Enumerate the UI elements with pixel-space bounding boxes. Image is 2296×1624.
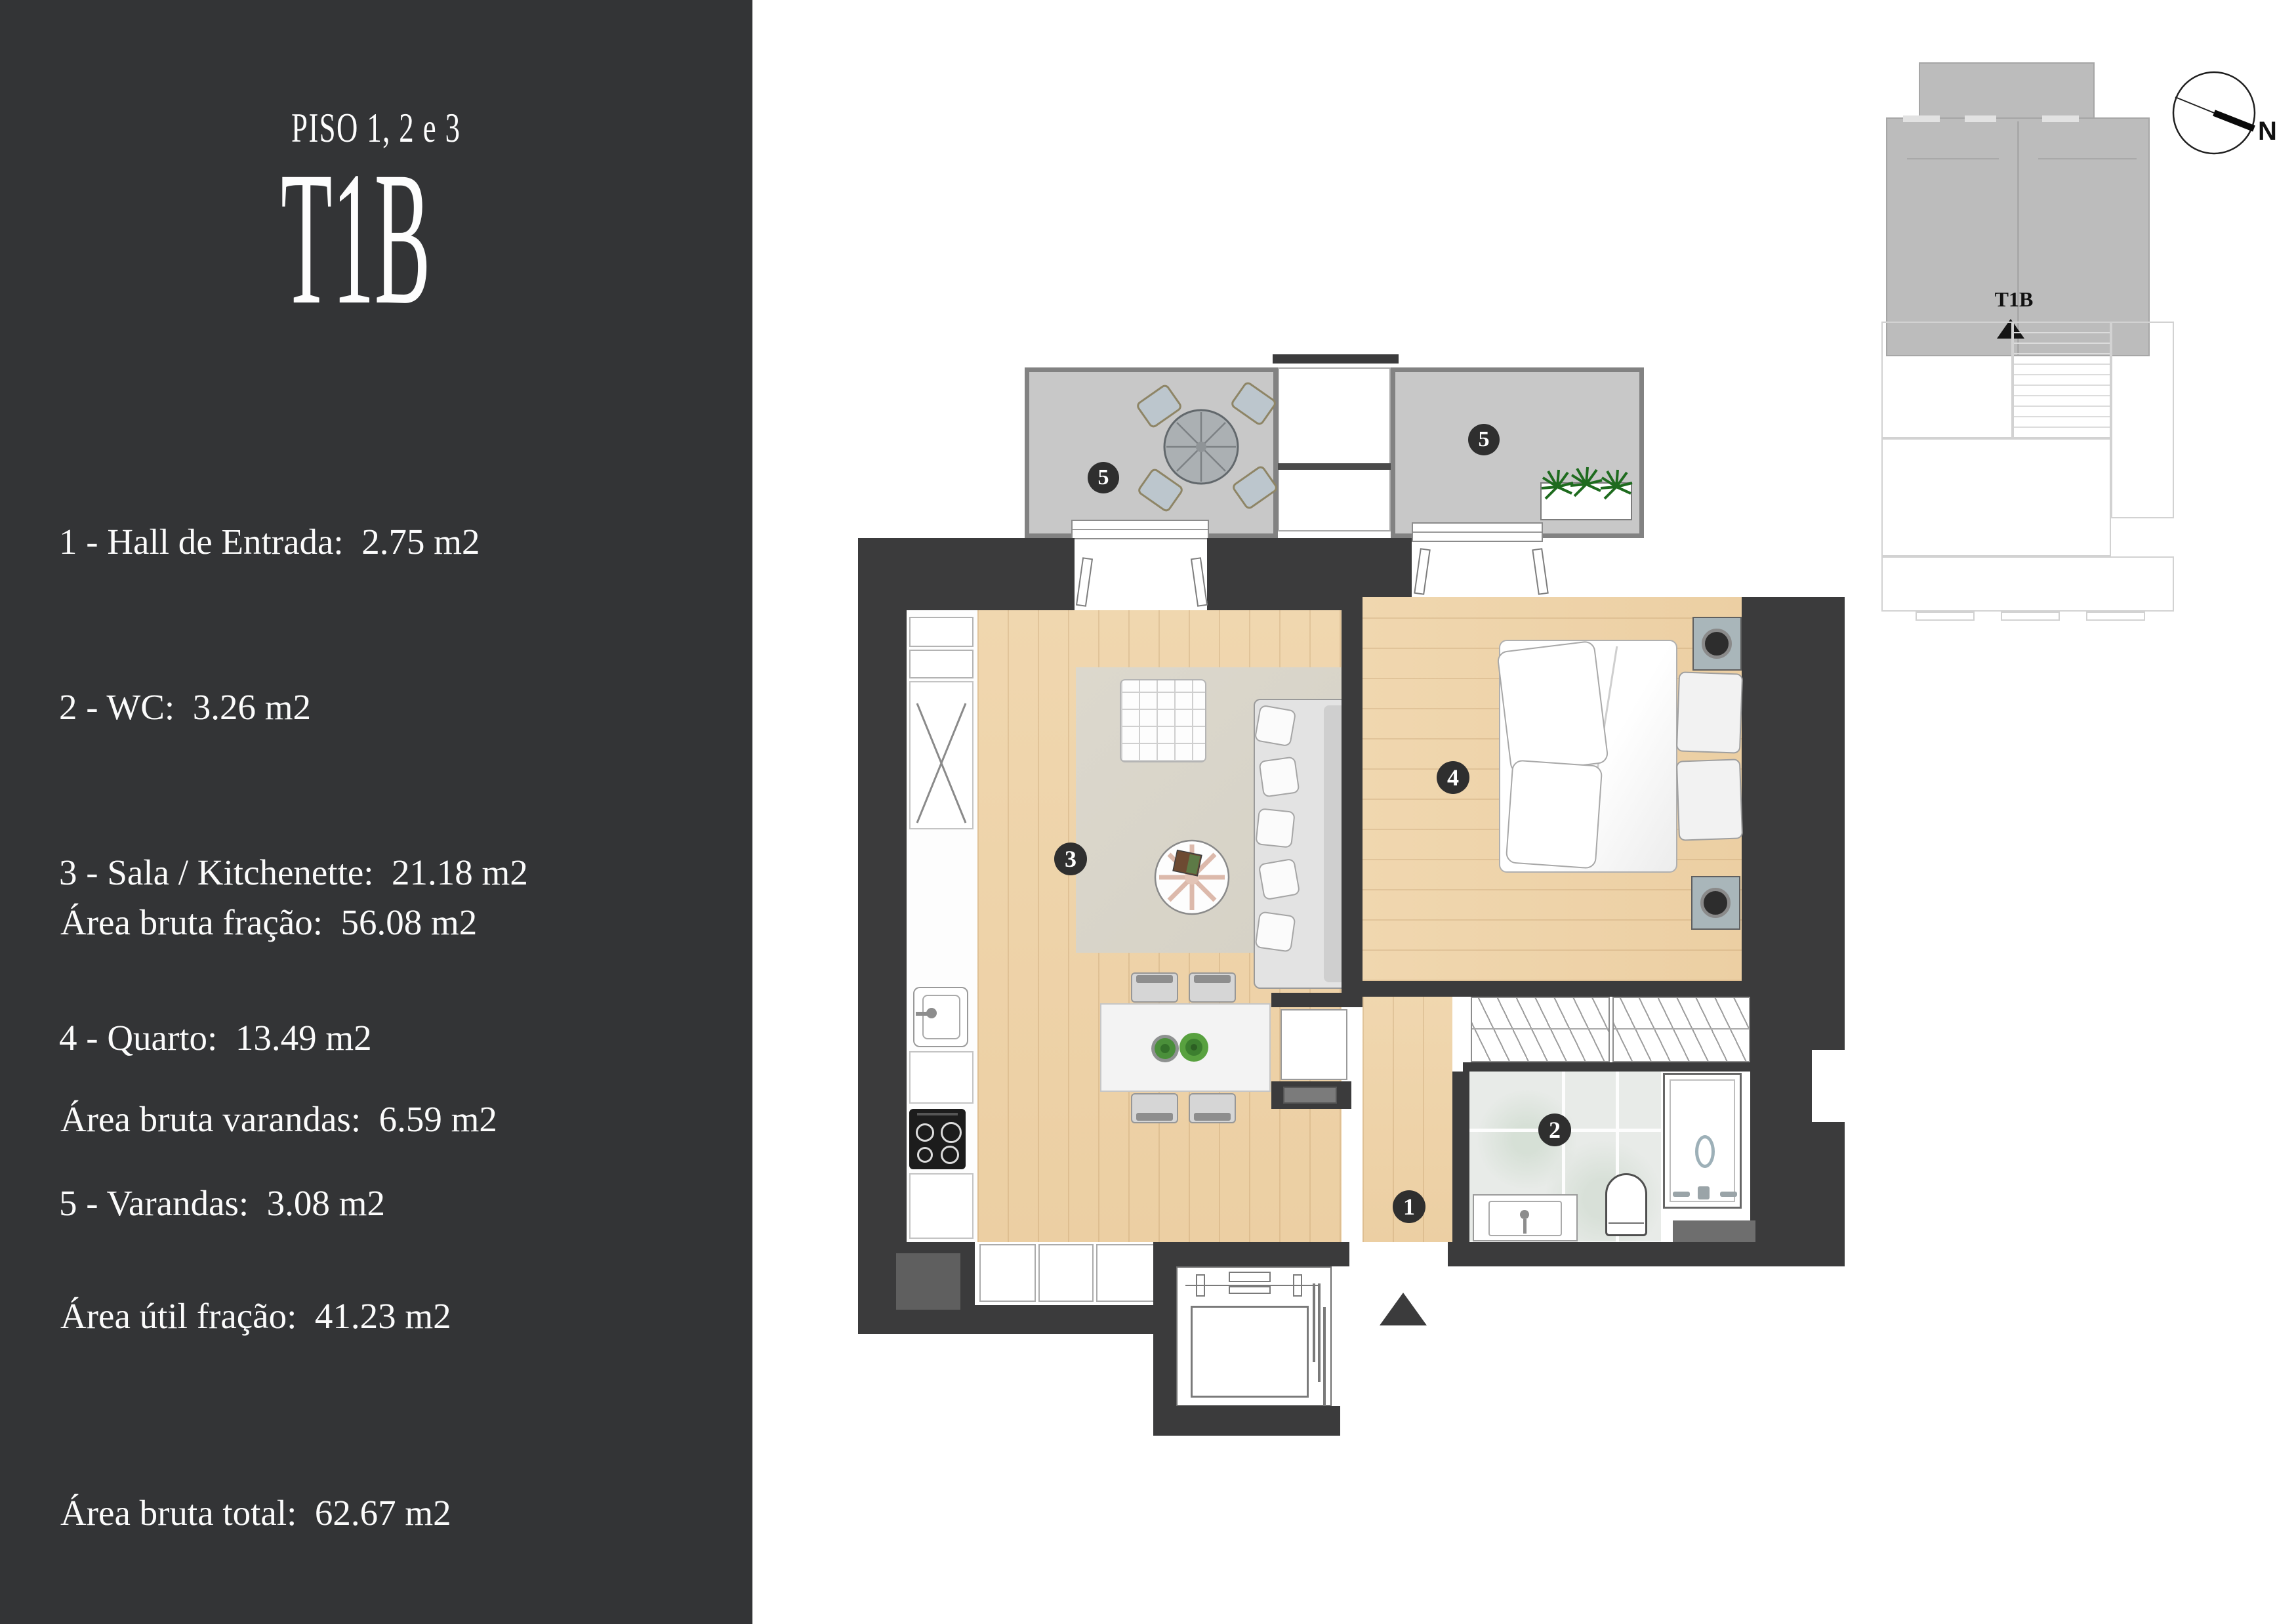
sidebar: PISO 1, 2 e 3 T1B 1 - Hall de Entrada: 2… (0, 0, 752, 1624)
entrance-arrow-icon (1380, 1293, 1427, 1325)
locator-unit-label: T1B (1975, 287, 2053, 314)
compass: N (2165, 66, 2296, 171)
kitchen-cabinet (909, 617, 974, 647)
kitchen-sink (913, 987, 968, 1047)
wall-under-cabinets (975, 1305, 1157, 1334)
wall-bottom-right (1448, 1242, 1845, 1266)
hall-cabinet (1281, 1009, 1347, 1080)
ottoman (1120, 679, 1206, 762)
headboard-cushion (1676, 759, 1743, 841)
wardrobe (1612, 997, 1750, 1062)
nightstand-lamp-icon (1700, 888, 1731, 918)
headboard-cushion (1676, 671, 1743, 753)
nightstand-lamp-icon (1702, 629, 1732, 659)
area-bruta-fracao: Área bruta fração: 56.08 m2 (60, 890, 497, 955)
wall-hall-wc (1452, 1072, 1469, 1242)
wall-living-bedroom (1342, 607, 1363, 993)
kitchen-cabinet (909, 1051, 974, 1104)
low-cabinet (979, 1244, 1036, 1302)
dining-chair (1131, 1093, 1178, 1123)
badge-bedroom: 4 (1437, 761, 1469, 794)
area-bruta-total: Área bruta total: 62.67 m2 (60, 1480, 497, 1546)
badge-balcony-right: 5 (1468, 424, 1500, 455)
locator-faint-room (1881, 556, 2174, 612)
window-sill (1071, 520, 1209, 539)
balcony-table-icon (1153, 399, 1249, 495)
badge-wc: 2 (1538, 1114, 1571, 1146)
entry-mat (896, 1253, 960, 1310)
locator-balcony (1916, 612, 1975, 621)
sofa-pillow (1254, 705, 1297, 747)
toilet (1605, 1173, 1647, 1236)
wardrobe (1471, 997, 1610, 1062)
elevator-shaft (1176, 1266, 1332, 1406)
area-util-fracao: Área útil fração: 41.23 m2 (60, 1283, 497, 1349)
cooktop (909, 1109, 966, 1169)
bathtub (1663, 1073, 1742, 1209)
cabinet-drawer (1283, 1087, 1337, 1104)
wall-closet-bottom (1463, 1062, 1752, 1072)
planter-plants-icon (1540, 457, 1632, 516)
wall-left (858, 538, 907, 1242)
entrance-opening (1349, 1242, 1448, 1266)
locator-map: T1B (1876, 39, 2204, 623)
legend-item-hall: 1 - Hall de Entrada: 2.75 m2 (59, 514, 528, 570)
wc-vanity (1473, 1194, 1578, 1241)
locator-balcony (2001, 612, 2060, 621)
outer-wall-strip (1273, 354, 1399, 364)
locator-faint-room (2111, 322, 2174, 518)
bed-pillow (1506, 759, 1603, 869)
sofa-pillow (1258, 858, 1301, 901)
wall-notch (1812, 1050, 1845, 1122)
wall-right-upper (1742, 597, 1845, 981)
door-leaf (1414, 548, 1431, 595)
kitchen-cabinet (909, 650, 974, 678)
dining-chair (1189, 1093, 1236, 1123)
sofa-pillow (1258, 756, 1300, 797)
balcony-recess (1278, 367, 1391, 531)
wall-nook-top (1271, 993, 1363, 1007)
door-leaf (1076, 557, 1093, 607)
locator-building-rear (1919, 62, 2095, 120)
locator-balcony (2086, 612, 2145, 621)
badge-balcony-left: 5 (1088, 462, 1119, 493)
dining-chair (1131, 972, 1178, 1003)
sofa-pillow (1254, 911, 1296, 952)
compass-north-label: N (2258, 117, 2277, 146)
bed-pillow (1496, 640, 1609, 775)
badge-hall: 1 (1393, 1190, 1425, 1223)
dining-chair (1189, 972, 1236, 1003)
wall-bottom-shaft-top (1153, 1242, 1349, 1266)
coffee-table-icon (1151, 837, 1233, 918)
locator-faint-room (1881, 322, 2013, 438)
table-plants-icon (1148, 1031, 1214, 1066)
area-bruta-varandas: Área bruta varandas: 6.59 m2 (60, 1087, 497, 1152)
floor-plan-sheet: PISO 1, 2 e 3 T1B 1 - Hall de Entrada: 2… (0, 0, 2296, 1624)
sofa-pillow (1255, 808, 1296, 848)
apartment-plan: 5 5 3 4 2 1 (853, 341, 1847, 1476)
kitchen-cabinet (909, 1173, 974, 1239)
wall-shaft-bottom (1153, 1406, 1340, 1436)
badge-living: 3 (1054, 843, 1087, 875)
legend-item-wc: 2 - WC: 3.26 m2 (59, 680, 528, 735)
unit-title: T1B (281, 139, 430, 339)
locator-stairs (2013, 322, 2111, 438)
door-swing-cross-icon (913, 701, 970, 825)
door-leaf (1532, 548, 1549, 595)
low-cabinet (1038, 1244, 1094, 1302)
area-summary: Área bruta fração: 56.08 m2 Área bruta v… (60, 759, 497, 1624)
low-cabinet (1096, 1244, 1155, 1302)
door-leaf (1191, 557, 1208, 607)
wall-bedroom-bottom (1363, 981, 1752, 997)
locator-faint-room (1881, 438, 2111, 556)
window-sill (1412, 522, 1543, 542)
recess-divider (1278, 463, 1391, 470)
